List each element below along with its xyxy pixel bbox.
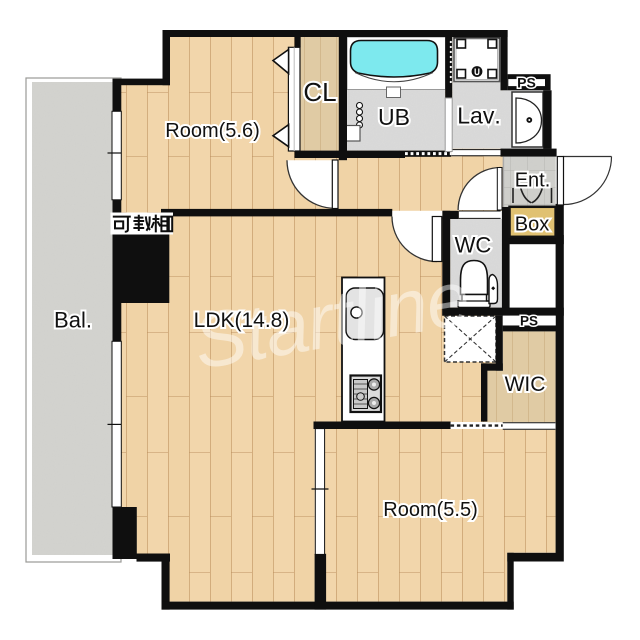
svg-text:UB: UB	[378, 104, 410, 130]
svg-text:WC: WC	[455, 233, 492, 258]
svg-text:WIC: WIC	[505, 373, 546, 396]
svg-text:Bal.: Bal.	[54, 308, 92, 333]
svg-text:Box: Box	[515, 214, 549, 236]
svg-text:Ent.: Ent.	[515, 170, 551, 192]
svg-text:CL: CL	[303, 77, 336, 107]
svg-text:PS: PS	[517, 75, 536, 91]
svg-text:LDK(14.8): LDK(14.8)	[194, 309, 290, 332]
svg-text:PS: PS	[520, 314, 538, 329]
svg-text:Room(5.5): Room(5.5)	[383, 499, 477, 521]
svg-text:Lav.: Lav.	[457, 103, 500, 129]
svg-text:Room(5.6): Room(5.6)	[165, 120, 259, 142]
